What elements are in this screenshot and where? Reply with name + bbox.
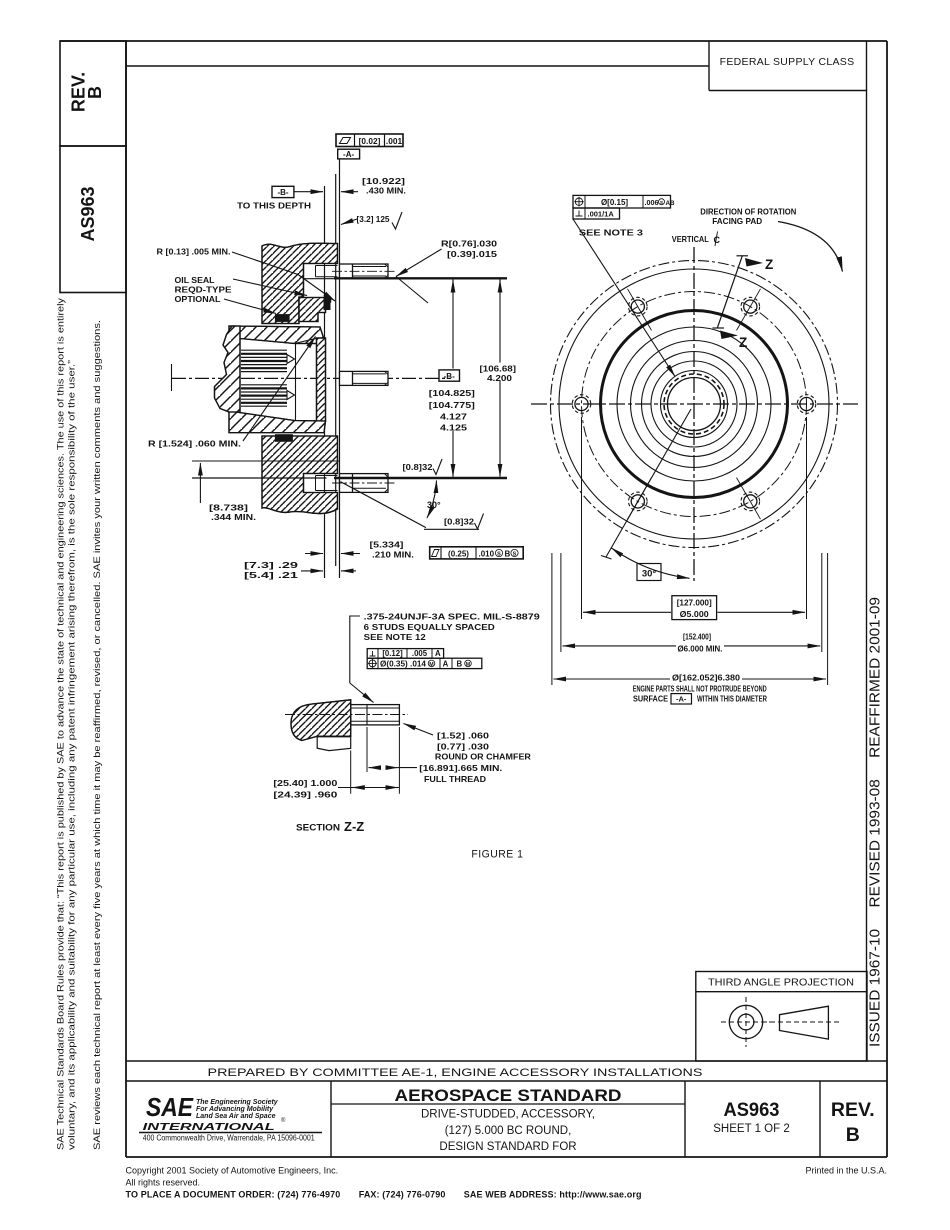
svg-text:SAE: SAE: [146, 1092, 194, 1122]
svg-text:[0.77] .030: [0.77] .030: [437, 742, 489, 752]
svg-text:[1.52] .060: [1.52] .060: [437, 731, 489, 741]
svg-text:[16.891].665 MIN.: [16.891].665 MIN.: [419, 763, 502, 773]
svg-text:Ø[0.15]: Ø[0.15]: [601, 198, 628, 207]
svg-text:-A-: -A-: [676, 695, 687, 704]
svg-text:AEROSPACE STANDARD: AEROSPACE STANDARD: [395, 1087, 622, 1105]
svg-text:VERTICAL: VERTICAL: [672, 234, 709, 244]
svg-text:30°: 30°: [427, 500, 441, 510]
svg-text:R[0.76].030: R[0.76].030: [441, 239, 497, 249]
svg-text:ENGINE PARTS SHALL NOT PROTRUD: ENGINE PARTS SHALL NOT PROTRUDE BEYOND: [633, 684, 767, 694]
svg-text:Ø(0.35) .014: Ø(0.35) .014: [380, 659, 427, 668]
svg-text:Printed in the U.S.A.: Printed in the U.S.A.: [805, 1166, 887, 1176]
svg-text:B: B: [505, 549, 511, 558]
svg-text:SECTION: SECTION: [296, 823, 340, 833]
svg-text:OPTIONAL: OPTIONAL: [175, 294, 221, 304]
svg-text:.210 MIN.: .210 MIN.: [372, 550, 414, 560]
svg-text:[8.738]: [8.738]: [209, 503, 248, 513]
svg-text:THIRD ANGLE PROJECTION: THIRD ANGLE PROJECTION: [708, 978, 854, 989]
svg-text:Ø5.000: Ø5.000: [680, 609, 709, 619]
svg-text:OIL SEAL: OIL SEAL: [175, 275, 215, 285]
svg-text:B: B: [457, 659, 463, 668]
svg-text:M: M: [429, 662, 434, 668]
svg-text:[0.02]: [0.02]: [359, 136, 381, 146]
svg-text:-B-: -B-: [444, 372, 455, 381]
svg-text:TO THIS DEPTH: TO THIS DEPTH: [237, 201, 311, 211]
svg-text:ROUND OR CHAMFER: ROUND OR CHAMFER: [435, 752, 531, 762]
svg-text:REQD-TYPE: REQD-TYPE: [175, 285, 233, 295]
svg-text:R [0.13] .005 MIN.: R [0.13] .005 MIN.: [157, 247, 231, 257]
svg-text:®: ®: [281, 1117, 286, 1124]
svg-text:.344 MIN.: .344 MIN.: [211, 512, 256, 522]
svg-text:-A-: -A-: [343, 150, 354, 159]
svg-text:ISSUED 1967-10 REVISED 199: ISSUED 1967-10 REVISED 1993-08 REAFFIRME…: [867, 597, 884, 1047]
svg-text:.006: .006: [645, 198, 659, 207]
svg-text:.001: .001: [386, 136, 403, 146]
svg-text:(0.25): (0.25): [448, 549, 469, 558]
svg-text:SAE Technical Standards Board: SAE Technical Standards Board Rules prov…: [56, 297, 66, 1150]
svg-text:voluntary, and its applicabili: voluntary, and its applicability and sui…: [67, 360, 77, 1150]
svg-text:A: A: [443, 659, 449, 668]
svg-text:30°: 30°: [642, 569, 657, 580]
svg-text:SEE NOTE 12: SEE NOTE 12: [364, 632, 426, 642]
svg-text:.005: .005: [412, 649, 428, 658]
svg-text:[0.8]32: [0.8]32: [403, 462, 433, 472]
svg-text:-B-: -B-: [277, 188, 288, 197]
svg-text:SHEET 1 OF 2: SHEET 1 OF 2: [713, 1123, 789, 1135]
svg-text:[152.400]: [152.400]: [683, 632, 711, 642]
svg-text:For Advancing Mobility: For Advancing Mobility: [196, 1106, 274, 1113]
svg-text:INTERNATIONAL: INTERNATIONAL: [143, 1122, 275, 1133]
svg-text:Z: Z: [739, 335, 747, 350]
svg-text:.375-24UNJF-3A SPEC. MIL-S-887: .375-24UNJF-3A SPEC. MIL-S-8879: [364, 612, 540, 622]
svg-text:FACING PAD: FACING PAD: [712, 216, 762, 226]
svg-text:[7.3] .29: [7.3] .29: [244, 560, 298, 570]
svg-text:A: A: [435, 649, 441, 658]
svg-text:The Engineering Society: The Engineering Society: [196, 1099, 279, 1106]
svg-text:Land Sea Air and Space: Land Sea Air and Space: [196, 1113, 276, 1120]
svg-text:4.127: 4.127: [440, 412, 467, 422]
svg-text:4.200: 4.200: [487, 373, 512, 383]
svg-text:.001/1A: .001/1A: [588, 210, 615, 219]
svg-text:S: S: [660, 200, 664, 206]
svg-text:[25.40] 1.000: [25.40] 1.000: [273, 778, 337, 788]
svg-text:DIRECTION OF ROTATION: DIRECTION OF ROTATION: [700, 207, 796, 217]
svg-text:[104.775]: [104.775]: [429, 400, 475, 410]
svg-text:(127) 5.000 BC ROUND,: (127) 5.000 BC ROUND,: [445, 1125, 572, 1137]
svg-text:DESIGN STANDARD FOR: DESIGN STANDARD FOR: [439, 1141, 576, 1153]
svg-text:Copyright 2001 Society of Auto: Copyright 2001 Society of Automotive Eng…: [126, 1166, 339, 1176]
svg-text:DRIVE-STUDDED, ACCESSORY,: DRIVE-STUDDED, ACCESSORY,: [421, 1109, 595, 1121]
svg-text:FIGURE 1: FIGURE 1: [471, 849, 523, 861]
svg-text:.430 MIN.: .430 MIN.: [366, 185, 406, 195]
svg-text:[0.8]32: [0.8]32: [444, 517, 474, 527]
svg-text:6 STUDS EQUALLY SPACED: 6 STUDS EQUALLY SPACED: [364, 622, 495, 632]
svg-text:.010: .010: [479, 549, 495, 558]
svg-text:Ø[162.052]6.380: Ø[162.052]6.380: [672, 673, 740, 683]
svg-text:Ø6.000 MIN.: Ø6.000 MIN.: [678, 644, 723, 654]
svg-text:[127.000]: [127.000]: [677, 598, 712, 608]
svg-text:400 Commonwealth Drive, Warren: 400 Commonwealth Drive, Warrendale, PA 1…: [143, 1134, 315, 1143]
svg-text:[0.39].015: [0.39].015: [447, 249, 497, 259]
svg-text:[3.2] 125: [3.2] 125: [357, 214, 390, 224]
svg-text:S: S: [513, 552, 517, 558]
svg-text:SEE NOTE 3: SEE NOTE 3: [579, 228, 643, 238]
svg-text:[104.825]: [104.825]: [429, 388, 475, 398]
svg-text:[5.334]: [5.334]: [370, 540, 404, 550]
svg-text:Z: Z: [765, 257, 773, 272]
svg-text:B: B: [846, 1124, 860, 1146]
svg-text:FULL THREAD: FULL THREAD: [424, 774, 486, 784]
svg-text:PREPARED BY COMMITTEE AE-1, EN: PREPARED BY COMMITTEE AE-1, ENGINE ACCES…: [208, 1067, 703, 1079]
svg-text:WITHIN THIS DIAMETER: WITHIN THIS DIAMETER: [697, 694, 767, 704]
svg-text:[5.4] .21: [5.4] .21: [244, 570, 298, 580]
svg-text:REV.: REV.: [831, 1099, 875, 1121]
svg-text:M: M: [466, 662, 471, 668]
svg-text:R [1.524] .060 MIN.: R [1.524] .060 MIN.: [148, 439, 241, 449]
svg-text:S: S: [497, 552, 501, 558]
svg-text:B: B: [85, 86, 105, 99]
svg-text:4.125: 4.125: [440, 423, 467, 433]
svg-text:AB: AB: [666, 200, 675, 207]
svg-text:[0.12]: [0.12]: [382, 649, 403, 658]
svg-text:FEDERAL SUPPLY CLASS: FEDERAL SUPPLY CLASS: [720, 56, 855, 68]
svg-text:TO PLACE A DOCUMENT ORDER: (7: TO PLACE A DOCUMENT ORDER: (724) 776-497…: [126, 1190, 642, 1200]
svg-text:SURFACE: SURFACE: [633, 694, 668, 704]
svg-text:AS963: AS963: [78, 186, 98, 241]
svg-text:All rights reserved.: All rights reserved.: [126, 1178, 201, 1188]
svg-text:Z-Z: Z-Z: [344, 819, 364, 834]
svg-text:AS963: AS963: [724, 1100, 780, 1121]
svg-text:[24.39] .960: [24.39] .960: [273, 790, 337, 800]
svg-text:SAE reviews each technical rep: SAE reviews each technical report at lea…: [92, 320, 102, 1150]
